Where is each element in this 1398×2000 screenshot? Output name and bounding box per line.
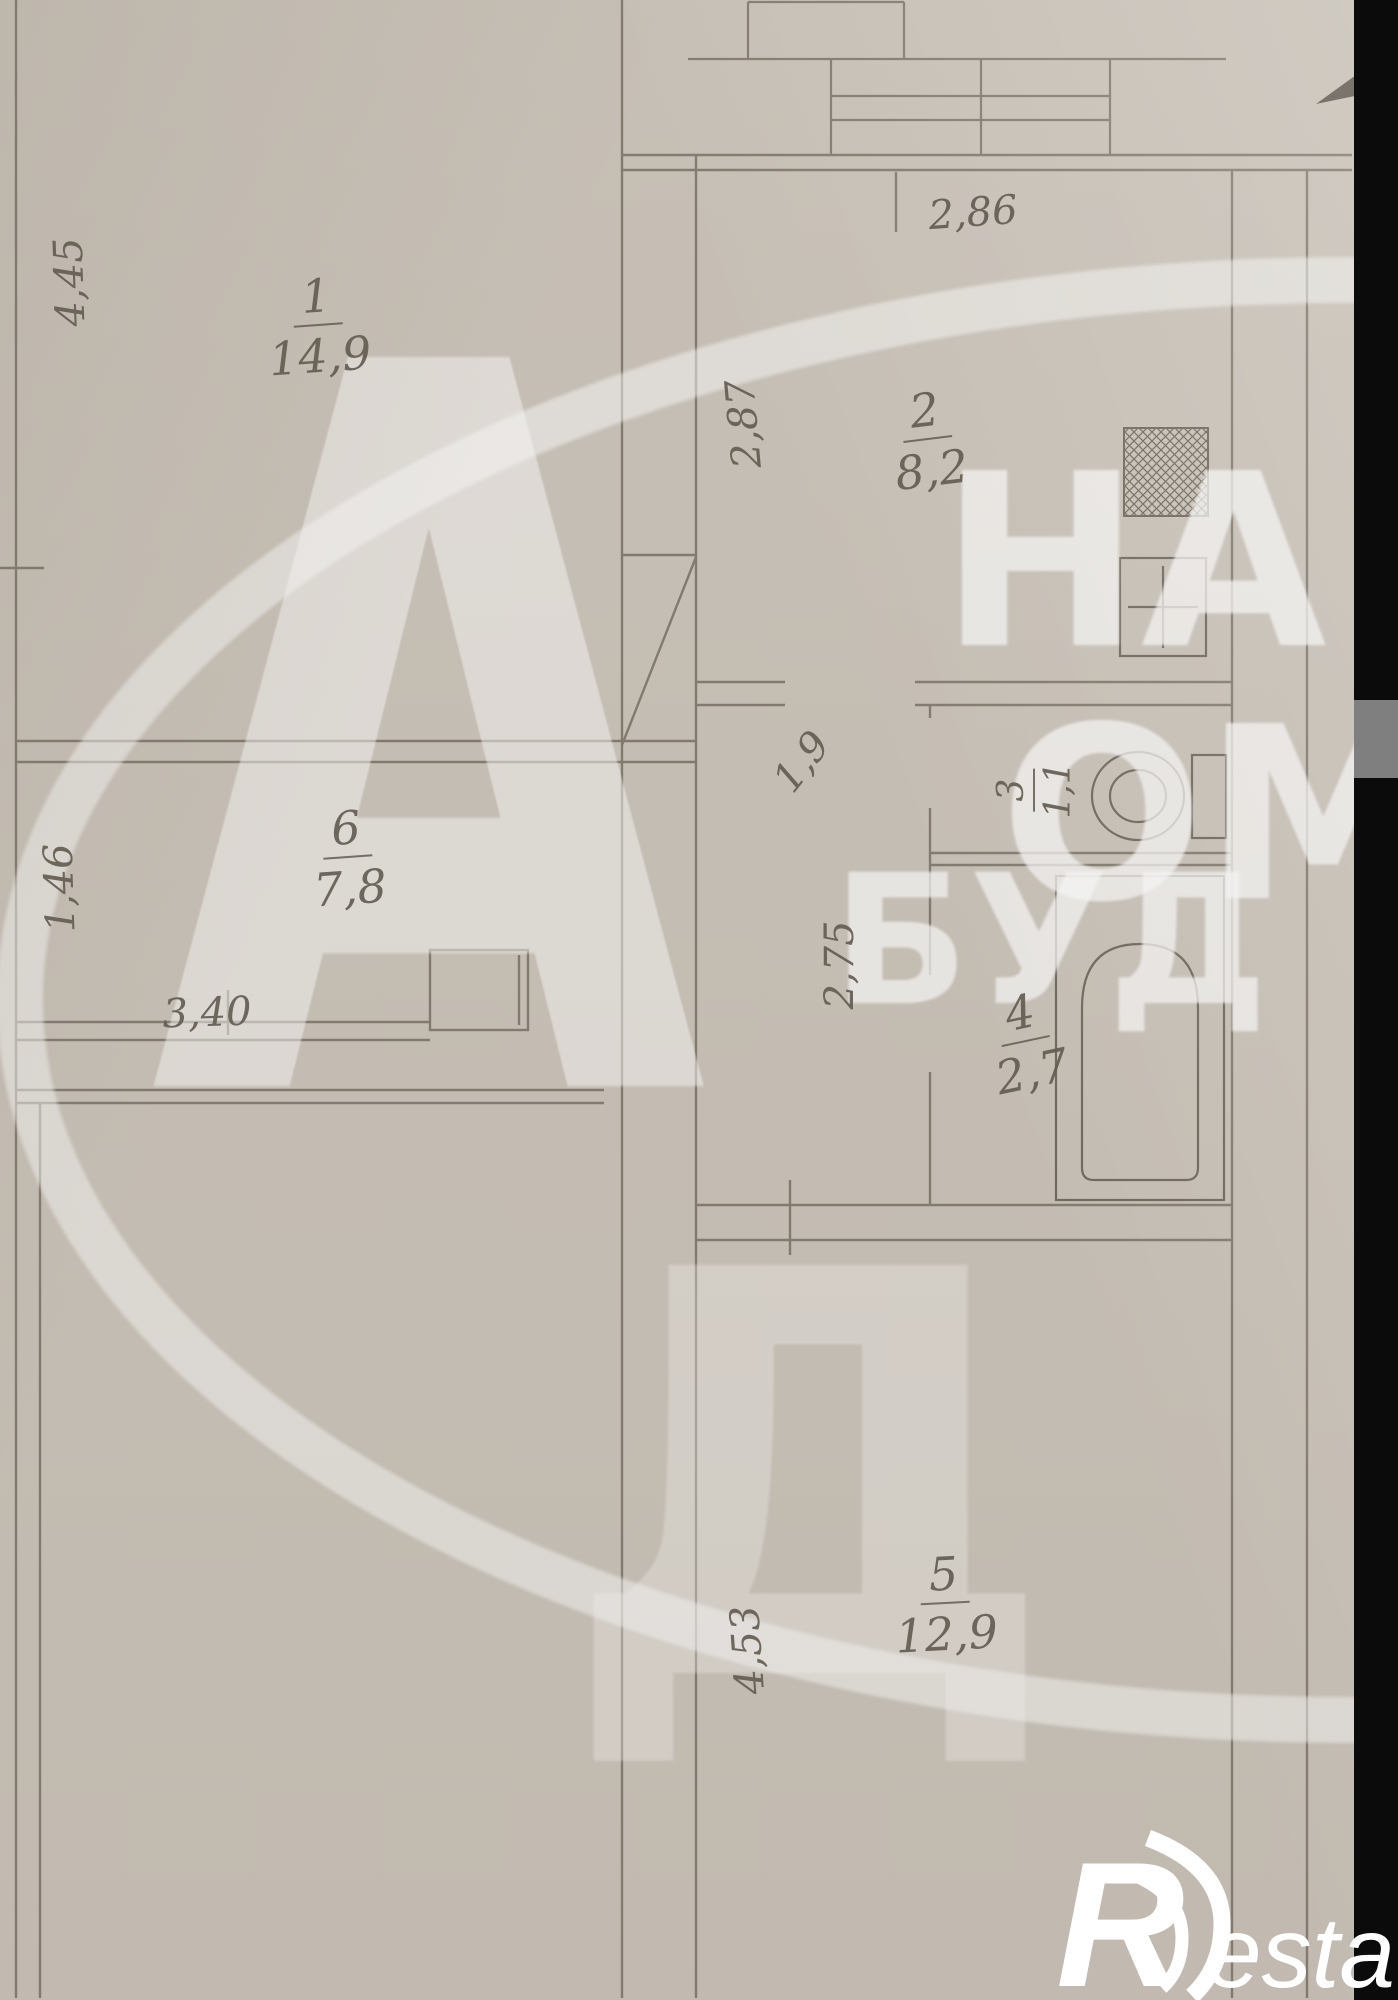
dimension-2-86: 2,86: [927, 187, 1019, 239]
watermark-letter-a: А: [150, 240, 707, 1240]
room-area: 1,1: [1038, 761, 1079, 818]
scan-black-margin: [1354, 0, 1398, 2000]
restate-logo-initial: R: [1056, 1822, 1185, 2000]
room-number: 2: [897, 380, 953, 443]
dimension-4-45: 4,45: [45, 237, 94, 328]
room-label-1: 1 14,9: [263, 266, 373, 387]
restate-logo-text: estate: [1206, 1896, 1398, 2000]
room-area: 7,8: [312, 858, 389, 917]
room-label-2: 2 8,2: [885, 379, 972, 501]
watermark-text-top: НА: [940, 442, 1327, 682]
room-label-5: 5 12,9: [891, 1544, 999, 1663]
dimension-1-46: 1,46: [35, 843, 84, 934]
room-number: 3: [991, 769, 1035, 812]
room-label-3: 3 1,1: [991, 761, 1079, 818]
balcony-railing: [688, 2, 1226, 155]
room-label-6: 6 7,8: [308, 799, 389, 918]
room-area: 8,2: [892, 439, 971, 502]
dimension-3-40: 3,40: [162, 988, 253, 1037]
watermark-letter-d: Д: [560, 1200, 1059, 1760]
dimension-2-87: 2,87: [717, 378, 771, 471]
dimension-2-75: 2,75: [817, 920, 863, 1009]
room-area: 14,9: [267, 325, 373, 386]
room-number: 5: [917, 1546, 969, 1606]
scan-margin-glow: [1354, 700, 1398, 778]
room-number: 4: [990, 981, 1050, 1047]
room-area: 12,9: [894, 1604, 999, 1663]
room-number: 1: [289, 267, 342, 327]
room-number: 6: [319, 799, 372, 859]
dimension-4-53: 4,53: [722, 1604, 774, 1696]
floor-plan-scan: А Д НА ОМ БУД 1 14,9 2 8,2 3 1,1 4 2,7 5…: [0, 0, 1398, 2000]
